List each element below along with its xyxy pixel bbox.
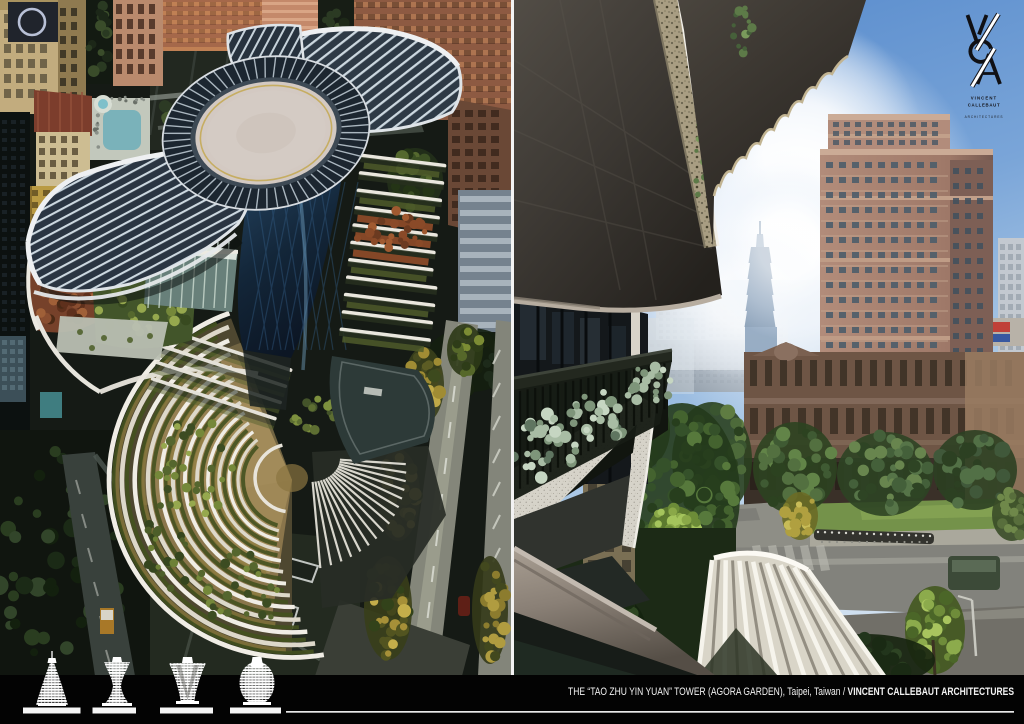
svg-text:CALLEBAUT: CALLEBAUT <box>968 103 1001 108</box>
svg-text:ARCHITECTURES: ARCHITECTURES <box>965 115 1004 119</box>
svg-text:VINCENT: VINCENT <box>971 96 998 101</box>
svg-text:THE “TAO ZHU YIN YUAN” TOWER (: THE “TAO ZHU YIN YUAN” TOWER (AGORA GARD… <box>568 686 1014 698</box>
